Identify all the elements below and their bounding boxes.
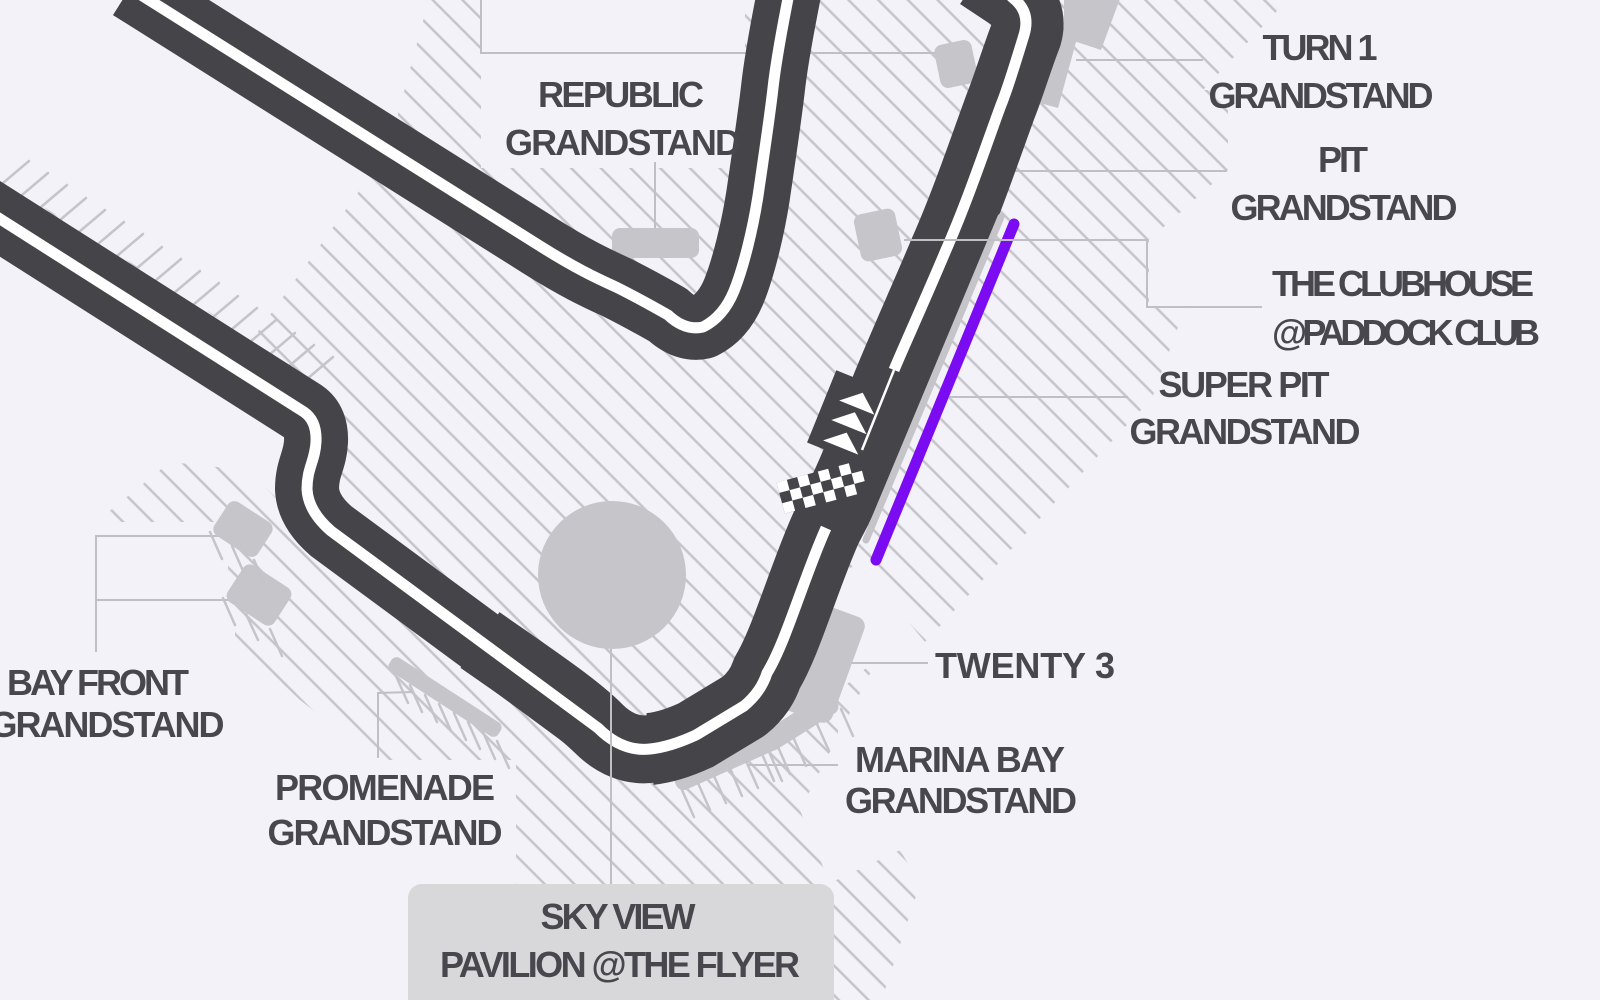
svg-text:BAY FRONT: BAY FRONT — [7, 662, 189, 703]
svg-text:PAVILION @THE FLYER: PAVILION @THE FLYER — [440, 944, 800, 985]
svg-text:GRANDSTAND: GRANDSTAND — [505, 122, 741, 163]
svg-text:REPUBLIC: REPUBLIC — [538, 74, 704, 115]
svg-text:TURN 1: TURN 1 — [1263, 27, 1378, 68]
svg-text:SKY VIEW: SKY VIEW — [541, 896, 696, 937]
svg-text:SUPER PIT: SUPER PIT — [1159, 364, 1330, 405]
svg-text:MARINA BAY: MARINA BAY — [855, 739, 1065, 780]
svg-text:GRANDSTAND: GRANDSTAND — [845, 780, 1077, 821]
svg-text:@PADDOCK CLUB: @PADDOCK CLUB — [1272, 312, 1540, 353]
svg-text:GRANDSTAND: GRANDSTAND — [268, 812, 503, 853]
svg-text:TWENTY 3: TWENTY 3 — [935, 645, 1115, 686]
svg-text:GRANDSTAND: GRANDSTAND — [1209, 75, 1434, 116]
svg-text:THE CLUBHOUSE: THE CLUBHOUSE — [1272, 263, 1534, 304]
svg-text:PIT: PIT — [1318, 139, 1368, 180]
svg-text:GRANDSTAND: GRANDSTAND — [1130, 411, 1361, 452]
svg-text:PROMENADE: PROMENADE — [275, 767, 495, 808]
svg-text:GRANDSTAND: GRANDSTAND — [1231, 187, 1458, 228]
svg-text:GRANDSTAND: GRANDSTAND — [0, 704, 225, 745]
